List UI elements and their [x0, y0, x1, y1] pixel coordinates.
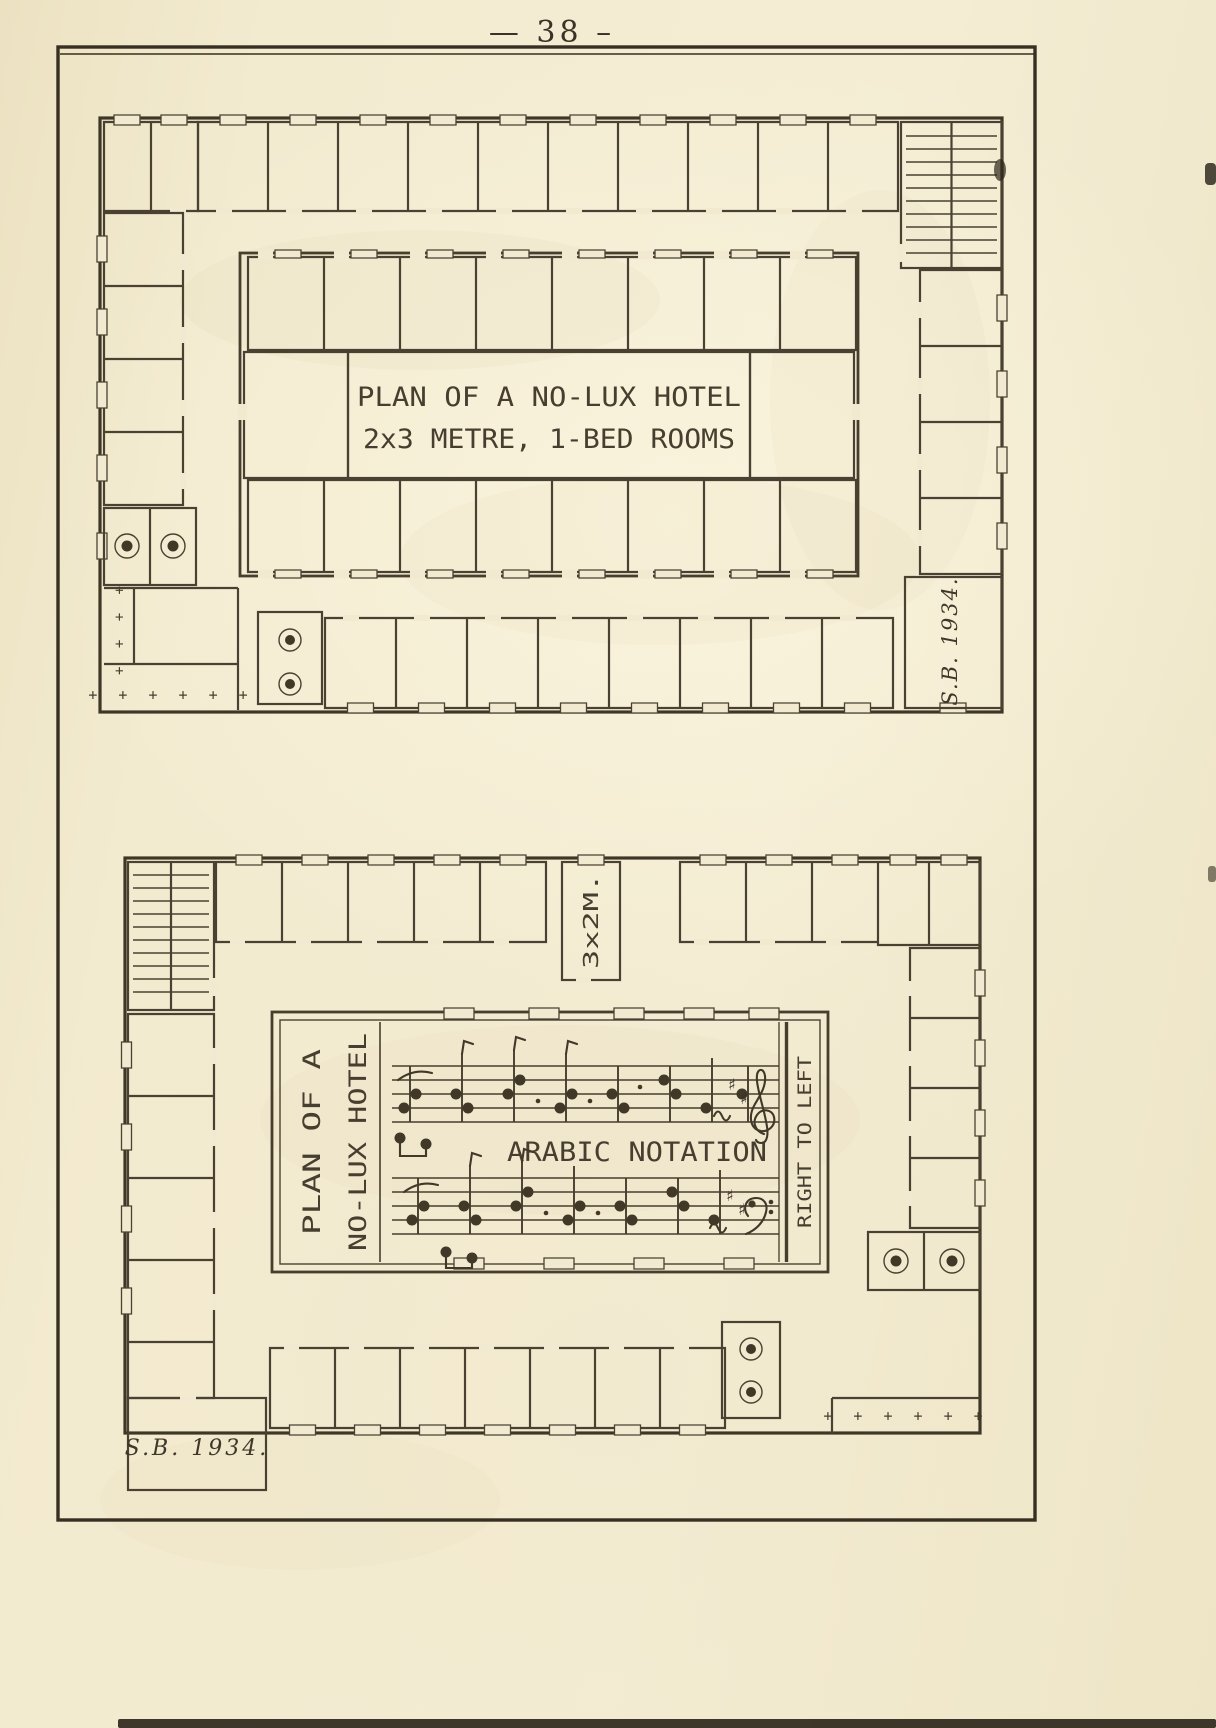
room-row-bottom	[325, 618, 893, 708]
toilet-icon	[104, 508, 196, 585]
toilet-icon	[258, 612, 322, 704]
bass-clef-icon	[745, 1198, 773, 1234]
corner-rooms-left	[104, 122, 198, 211]
ink-blot	[994, 159, 1006, 181]
inner-room-left	[244, 352, 348, 478]
plan-title-line1: PLAN OF A NO-LUX HOTEL	[357, 382, 741, 413]
sharp-icon: ♯	[728, 1075, 736, 1094]
room-row-right	[910, 948, 980, 1228]
mordent-mark	[710, 1224, 726, 1233]
side-title-line1: PLAN OF A	[298, 1048, 326, 1235]
toilet-icon	[722, 1322, 780, 1418]
terrace-cross-marks-horizontal: + + + + + +	[88, 686, 253, 704]
edge-smudge	[1208, 866, 1216, 882]
direction-label: RIGHT TO LEFT	[794, 1056, 816, 1228]
staircase-icon	[128, 862, 214, 1010]
terrace-cross-marks: + + + + + +	[823, 1407, 988, 1425]
signature-top-plan: S.B. 1934.	[938, 576, 962, 705]
side-title-line2: NO-LUX HOTEL	[344, 1033, 372, 1251]
room-row-left	[128, 1014, 214, 1398]
sharp-icon: ♯	[726, 1186, 734, 1205]
room-size-label: 3x2M.	[579, 873, 603, 969]
central-hall	[348, 352, 750, 478]
room-row-bottom	[270, 1348, 725, 1428]
room-row-left	[104, 213, 183, 505]
entry-terrace: + + + + + + + + + +	[88, 581, 253, 710]
notation-label: ARABIC NOTATION	[507, 1137, 767, 1168]
page-number: — 38 –	[489, 15, 615, 50]
room-row-top	[198, 122, 898, 211]
edge-smudge	[1205, 163, 1216, 185]
plan-title-line2: 2x3 METRE, 1-BED ROOMS	[363, 424, 735, 455]
sharp-icon: ♯	[740, 1089, 748, 1108]
entry-terrace: + + + + + +	[823, 1398, 988, 1433]
document-page: — 38 – +	[0, 0, 1216, 1728]
page-edge-shadow	[118, 1719, 1216, 1728]
toilet-icon	[868, 1232, 980, 1290]
terrace-cross-marks-vertical: + + + +	[112, 581, 128, 675]
scanned-page: — 38 – +	[0, 0, 1216, 1728]
signature-bottom-plan: S.B. 1934.	[125, 1436, 269, 1461]
door-gaps-top-row	[230, 942, 841, 980]
